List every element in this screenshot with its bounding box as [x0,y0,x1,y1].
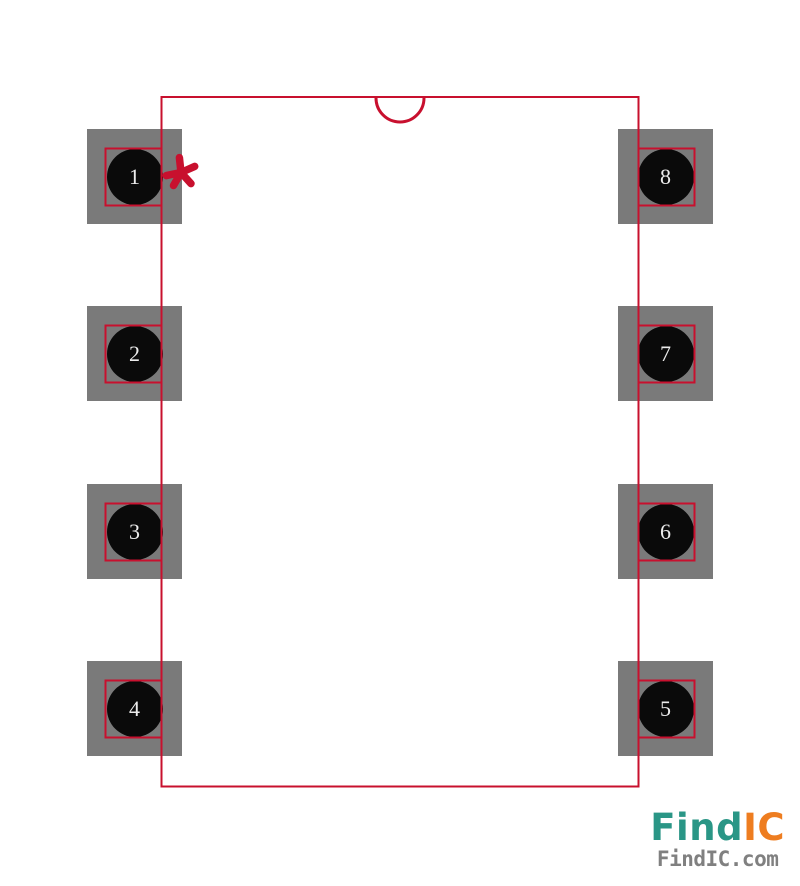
pin-7-number: 7 [660,343,671,365]
pin-2-number: 2 [129,343,140,365]
pad-pin-6: 6 [618,484,713,579]
logo-text-ic: IC [743,806,785,849]
package-notch [376,98,424,122]
pin-5-drill-hole: 5 [638,681,694,737]
pin-6-drill-hole: 6 [638,504,694,560]
pad-pin-7: 7 [618,306,713,401]
pin-2-drill-hole: 2 [107,326,163,382]
pin-3-number: 3 [129,521,140,543]
logo-text-find: Find [650,806,743,849]
pin-8-drill-hole: 8 [638,149,694,205]
package-body-outline [162,97,639,787]
pin-1-drill-hole: 1 [107,149,163,205]
pin-7-drill-hole: 7 [638,326,694,382]
findic-site-url: FindIC.com [650,849,785,870]
pin-8-number: 8 [660,166,671,188]
footprint-canvas: 1 2 3 4 8 7 6 5 [0,0,800,886]
pad-pin-8: 8 [618,129,713,224]
pin-3-drill-hole: 3 [107,504,163,560]
pad-pin-1: 1 [87,129,182,224]
pad-pin-2: 2 [87,306,182,401]
pad-pin-5: 5 [618,661,713,756]
findic-logo-wordmark: FindIC [650,809,785,846]
pad-pin-4: 4 [87,661,182,756]
pin-4-number: 4 [129,698,140,720]
findic-logo: FindIC FindIC.com [650,809,785,870]
pin-1-number: 1 [129,166,140,188]
pin-6-number: 6 [660,521,671,543]
pin-5-number: 5 [660,698,671,720]
pad-pin-3: 3 [87,484,182,579]
pin-4-drill-hole: 4 [107,681,163,737]
